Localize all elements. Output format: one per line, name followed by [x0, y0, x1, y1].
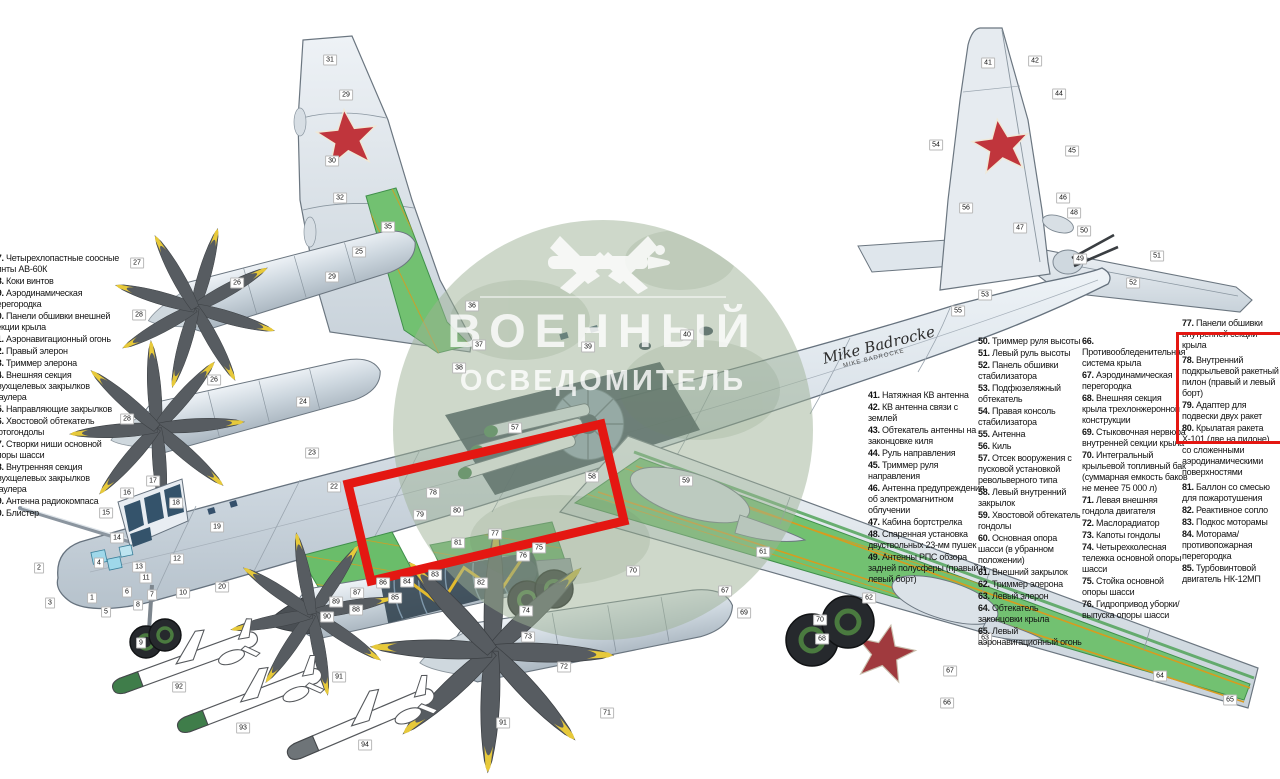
callout-number: 82: [474, 578, 488, 589]
callout-number: 19: [210, 522, 224, 533]
callout-number: 4: [94, 558, 104, 569]
callout-number: 30: [325, 156, 339, 167]
callout-number: 16: [120, 488, 134, 499]
part-item: 69. Стыковочная нервюра внутренней секци…: [1082, 427, 1188, 449]
part-item: 74. Четырехколесная тележка основной опо…: [1082, 542, 1188, 575]
part-item: 84. Моторама/противопожарная перегородка: [1182, 529, 1280, 562]
infographic-canvas: { "watermark": { "line1": "ВОЕННЫЙ", "li…: [0, 0, 1280, 779]
part-item: 27. Четырехлопастные соосные винты АВ-60…: [0, 253, 120, 275]
callout-number: 85: [388, 593, 402, 604]
callout-number: 28: [120, 414, 134, 425]
callout-number: 5: [101, 607, 111, 618]
part-item: 44. Руль направления: [868, 448, 986, 459]
callout-number: 59: [679, 476, 693, 487]
part-item: 40. Блистер: [0, 508, 120, 519]
parts-column-left: 27. Четырехлопастные соосные винты АВ-60…: [0, 253, 120, 520]
part-item: 70. Интегральный крыльевой топливный бак…: [1082, 450, 1188, 494]
callout-number: 36: [465, 301, 479, 312]
callout-number: 28: [132, 310, 146, 321]
callout-number: 52: [1126, 278, 1140, 289]
callout-number: 17: [146, 476, 160, 487]
part-item: 28. Коки винтов: [0, 276, 120, 287]
part-item: 73. Капоты гондолы: [1082, 530, 1188, 541]
callout-number: 24: [296, 397, 310, 408]
callout-number: 66: [940, 698, 954, 709]
callout-number: 26: [207, 375, 221, 386]
part-item: 46. Антенна предупреждения об электромаг…: [868, 483, 986, 516]
part-item: 77. Панели обшивки внутренней секции кры…: [1182, 318, 1280, 351]
callout-number: 87: [350, 588, 364, 599]
callout-number: 22: [327, 482, 341, 493]
part-item: 60. Основная опора шасси (в убранном пол…: [978, 533, 1082, 566]
callout-number: 44: [1052, 89, 1066, 100]
callout-number: 88: [349, 605, 363, 616]
part-item: 34. Внешняя секция двухщелевых закрылков…: [0, 370, 120, 403]
callout-number: 2: [34, 563, 44, 574]
part-item: 39. Антенна радиокомпаса: [0, 496, 120, 507]
callout-number: 1: [87, 593, 97, 604]
part-item: 79. Адаптер для подвески двух ракет: [1182, 400, 1280, 422]
callout-number: 39: [581, 342, 595, 353]
callout-number: 67: [943, 666, 957, 677]
parts-column-50: 50. Триммер руля высоты51. Левый руль вы…: [978, 336, 1082, 649]
part-item: 38. Внутренняя секция двухщелевых закрыл…: [0, 462, 120, 495]
callout-number: 50: [1077, 226, 1091, 237]
callout-number: 53: [978, 290, 992, 301]
callout-number: 54: [929, 140, 943, 151]
part-item: 42. КВ антенна связи с землей: [868, 402, 986, 424]
callout-number: 71: [600, 708, 614, 719]
part-item: 36. Хвостовой обтекатель мотогондолы: [0, 416, 120, 438]
callout-number: 18: [169, 498, 183, 509]
callout-number: 23: [305, 448, 319, 459]
callout-number: 26: [230, 278, 244, 289]
callout-number: 81: [451, 538, 465, 549]
part-item: 51. Левый руль высоты: [978, 348, 1082, 359]
callout-number: 14: [110, 533, 124, 544]
part-item: 75. Стойка основной опоры шасси: [1082, 576, 1188, 598]
callout-number: 41: [981, 58, 995, 69]
callout-number: 55: [951, 306, 965, 317]
callout-number: 29: [339, 90, 353, 101]
callout-number: 80: [450, 506, 464, 517]
part-item: 33. Триммер элерона: [0, 358, 120, 369]
part-item: 47. Кабина бортстрелка: [868, 517, 986, 528]
callout-number: 13: [132, 562, 146, 573]
callout-number: 12: [170, 554, 184, 565]
part-item: 53. Подфюзеляжный обтекатель: [978, 383, 1082, 405]
callout-number: 25: [352, 247, 366, 258]
callout-number: 70: [813, 615, 827, 626]
callout-number: 57: [508, 423, 522, 434]
part-item: 59. Хвостовой обтекатель гондолы: [978, 510, 1082, 532]
callout-number: 6: [122, 587, 132, 598]
callout-number: 40: [680, 330, 694, 341]
callout-number: 73: [521, 632, 535, 643]
callout-number: 61: [756, 547, 770, 558]
part-item: 43. Обтекатель антенны на законцовке кил…: [868, 425, 986, 447]
part-item: 61. Внешний закрылок: [978, 567, 1082, 578]
part-item: 68. Внешняя секция крыла трехлонжеронной…: [1082, 393, 1188, 426]
part-item: 63. Левый элерон: [978, 591, 1082, 602]
part-item: 32. Правый элерон: [0, 346, 120, 357]
part-item: 66. Противообледенительная система крыла: [1082, 336, 1188, 369]
part-item: 62. Триммер элерона: [978, 579, 1082, 590]
callout-number: 48: [1067, 208, 1081, 219]
callout-number: 86: [376, 578, 390, 589]
part-item: 41. Натяжная КВ антенна: [868, 390, 986, 401]
callout-number: 91: [332, 672, 346, 683]
part-item: 37. Створки ниши основной опоры шасси: [0, 439, 120, 461]
callout-number: 92: [172, 682, 186, 693]
part-item: 29. Аэродинамическая перегородка: [0, 288, 120, 310]
part-item: 57. Отсек вооружения с пусковой установк…: [978, 453, 1082, 486]
part-item: 50. Триммер руля высоты: [978, 336, 1082, 347]
part-item: 35. Направляющие закрылков: [0, 404, 120, 415]
callout-number: 32: [333, 193, 347, 204]
callout-number: 65: [1223, 695, 1237, 706]
callout-number: 35: [381, 222, 395, 233]
part-item: 54. Правая консоль стабилизатора: [978, 406, 1082, 428]
callout-number: 51: [1150, 251, 1164, 262]
part-item: 45. Триммер руля направления: [868, 460, 986, 482]
part-item: 64. Обтекатель законцовки крыла: [978, 603, 1082, 625]
part-item: 72. Маслорадиатор: [1082, 518, 1188, 529]
callout-number: 75: [532, 543, 546, 554]
callout-number: 79: [413, 510, 427, 521]
callout-number: 42: [1028, 56, 1042, 67]
callout-number: 70: [626, 566, 640, 577]
parts-column-66: 66. Противообледенительная система крыла…: [1082, 336, 1188, 622]
part-item: 82. Реактивное сопло: [1182, 505, 1280, 516]
callout-number: 64: [1153, 671, 1167, 682]
callout-number: 49: [1073, 254, 1087, 265]
callout-number: 94: [358, 740, 372, 751]
callout-number: 69: [737, 608, 751, 619]
callout-number: 3: [45, 598, 55, 609]
part-item: 76. Гидропривод уборки/выпуска опоры шас…: [1082, 599, 1188, 621]
callout-number: 7: [147, 590, 157, 601]
callout-number: 62: [862, 593, 876, 604]
part-item: 56. Киль: [978, 441, 1082, 452]
part-item: 71. Левая внешняя гондола двигателя: [1082, 495, 1188, 517]
callout-number: 31: [323, 55, 337, 66]
callout-number: 47: [1013, 223, 1027, 234]
callout-number: 37: [472, 340, 486, 351]
parts-column-41: 41. Натяжная КВ антенна42. КВ антенна св…: [868, 390, 986, 586]
callout-number: 9: [136, 638, 146, 649]
boxed-part-items: 78. Внутренний подкрыльевой ракетный пил…: [1182, 352, 1280, 478]
part-item: 81. Баллон со смесью для пожаротушения: [1182, 482, 1280, 504]
part-item: 80. Крылатая ракета Х-101 (две на пилоне…: [1182, 423, 1280, 478]
parts-column-77: 77. Панели обшивки внутренней секции кры…: [1182, 318, 1280, 586]
callout-number: 46: [1056, 193, 1070, 204]
callout-number: 45: [1065, 146, 1079, 157]
part-item: 55. Антенна: [978, 429, 1082, 440]
callout-number: 8: [133, 600, 143, 611]
callout-number: 11: [139, 573, 152, 584]
part-item: 58. Левый внутренний закрылок: [978, 487, 1082, 509]
callout-number: 90: [320, 612, 334, 623]
callout-number: 76: [516, 551, 530, 562]
part-item: 67. Аэродинамическая перегородка: [1082, 370, 1188, 392]
callout-number: 56: [959, 203, 973, 214]
part-item: 78. Внутренний подкрыльевой ракетный пил…: [1182, 355, 1280, 399]
callout-number: 93: [236, 723, 250, 734]
callout-number: 91: [496, 718, 510, 729]
callout-number: 89: [329, 597, 343, 608]
callout-number: 10: [176, 588, 190, 599]
callout-number: 74: [519, 606, 533, 617]
callout-number: 20: [215, 582, 229, 593]
callout-number: 29: [325, 272, 339, 283]
callout-number: 58: [585, 472, 599, 483]
part-item: 52. Панель обшивки стабилизатора: [978, 360, 1082, 382]
callout-number: 84: [400, 577, 414, 588]
callout-number: 77: [488, 529, 502, 540]
callout-number: 72: [557, 662, 571, 673]
part-item: 48. Спаренная установка двуствольных 23-…: [868, 529, 986, 551]
callout-number: 67: [718, 586, 732, 597]
callout-number: 83: [428, 570, 442, 581]
callout-number: 78: [426, 488, 440, 499]
part-item: 83. Подкос моторамы: [1182, 517, 1280, 528]
part-item: 85. Турбовинтовой двигатель НК-12МП: [1182, 563, 1280, 585]
part-item: 31. Аэронавигационный огонь: [0, 334, 120, 345]
callout-number: 27: [130, 258, 144, 269]
part-item: 65. Левый аэронавигационный огонь: [978, 626, 1082, 648]
callout-number: 68: [815, 634, 829, 645]
part-item: 30. Панели обшивки внешней секции крыла: [0, 311, 120, 333]
callout-number: 38: [452, 363, 466, 374]
part-item: 49. Антенны РПС обзора задней полусферы …: [868, 552, 986, 585]
